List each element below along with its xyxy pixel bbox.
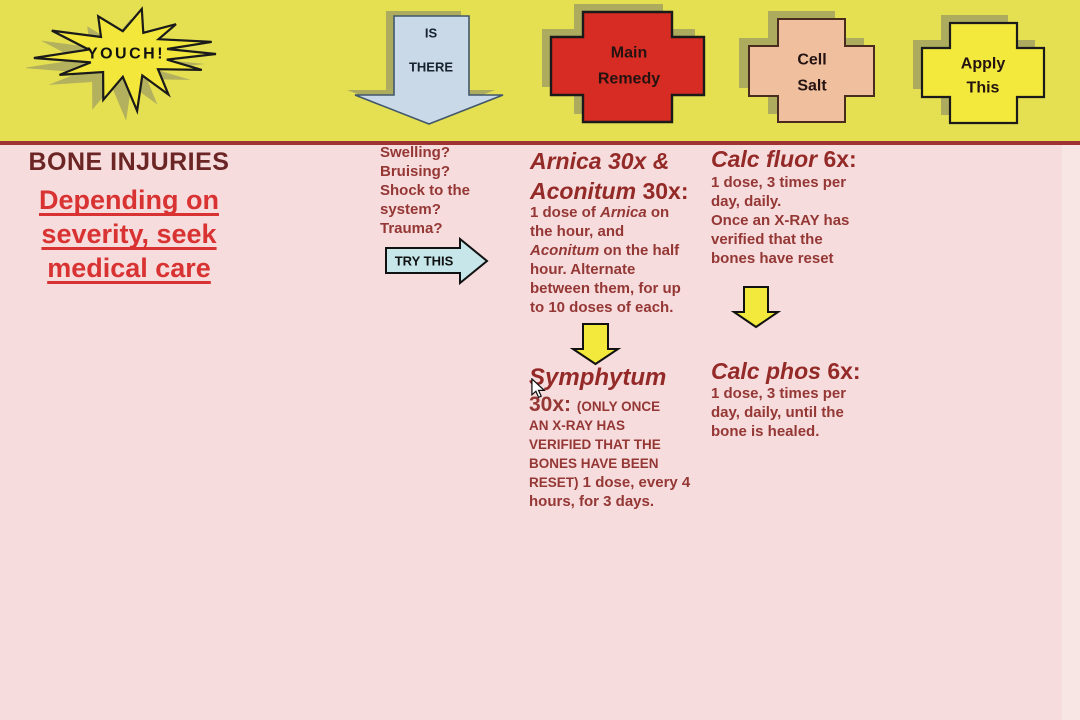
svg-text:This: This [967,80,1000,97]
svg-text:THERE: THERE [409,60,453,75]
svg-text:Salt: Salt [797,78,827,95]
svg-text:IS: IS [425,26,438,41]
svg-text:Main: Main [611,45,647,62]
svg-text:YOUCH!: YOUCH! [87,46,165,63]
svg-text:Cell: Cell [797,52,826,69]
svg-text:TRY THIS: TRY THIS [395,254,454,269]
svg-text:Remedy: Remedy [598,71,660,88]
svg-text:Apply: Apply [961,56,1006,73]
